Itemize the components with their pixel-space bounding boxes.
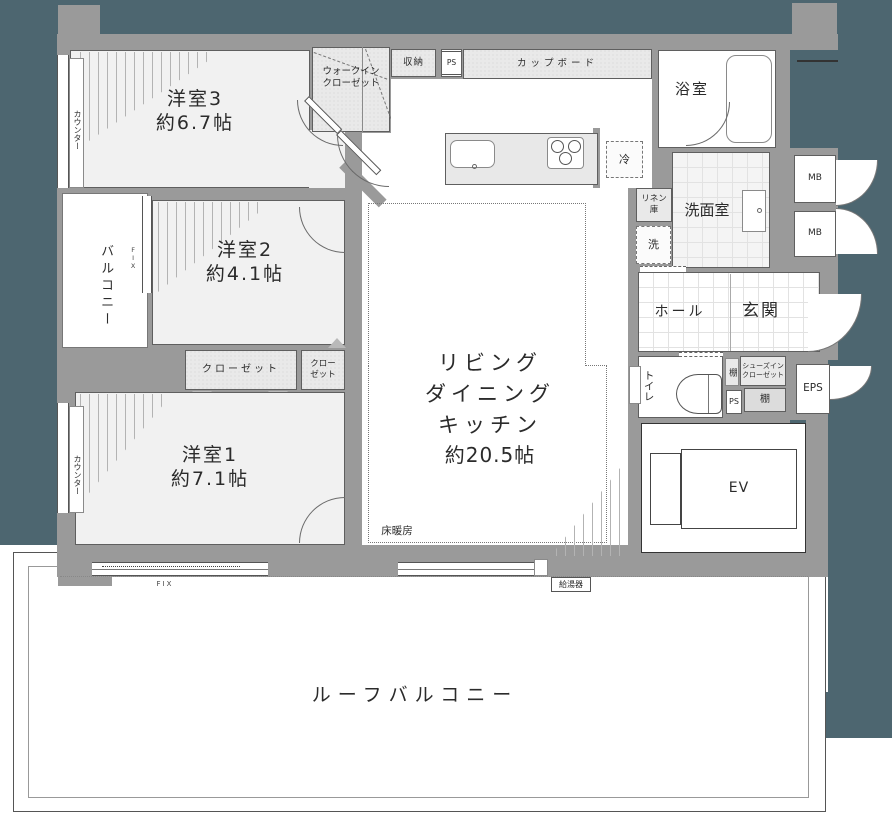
ldk-window-frame-box — [534, 559, 548, 576]
wic-label-2: クローゼット — [322, 78, 379, 90]
stove-burner-1 — [551, 140, 564, 153]
floor-heating-zone-upper — [368, 203, 586, 366]
room2-size: 約4.1帖 — [206, 263, 284, 287]
room3-name: 洋室3 — [167, 88, 223, 112]
door-toilet-sliding — [679, 352, 723, 357]
room3-window — [57, 55, 69, 188]
closet-small-2: ゼット — [310, 370, 336, 381]
elevator-counterweight — [650, 453, 681, 525]
floor-heating-label: 床暖房 — [371, 524, 423, 540]
room1-label: 洋室1 約7.1帖 — [110, 440, 310, 496]
genkan-step-line — [730, 274, 731, 351]
shoes-label-1: シューズイン — [742, 362, 784, 371]
fix-side-label: FIX — [127, 241, 139, 275]
washbasin-dot — [757, 208, 762, 213]
ps-lower-box: PS — [726, 390, 742, 414]
fix-window-side — [142, 196, 152, 293]
toilet-tank-line — [708, 375, 709, 413]
room3-label: 洋室3 約6.7帖 — [100, 84, 290, 140]
cupboard: カップボード — [463, 49, 652, 79]
ldk-floor-upper — [391, 79, 652, 133]
shoes-label-2: クローゼット — [742, 371, 784, 380]
roof-balcony-label: ルーフバルコニー — [260, 682, 570, 710]
room3-size: 約6.7帖 — [156, 112, 234, 136]
eps-box: EPS — [796, 364, 830, 414]
ps-top-box: PS — [441, 49, 462, 77]
toilet-label: トイレ — [641, 358, 655, 414]
washer-space: 洗 — [636, 226, 671, 264]
kitchen-faucet-dot — [472, 164, 477, 169]
toilet-bowl — [676, 374, 722, 414]
fix-bottom-label: FIX — [150, 579, 180, 589]
storage-box: 収納 — [391, 49, 436, 77]
balcony-label: バルコニー — [96, 232, 114, 340]
wall-pillar-top-left — [58, 5, 100, 47]
outside-area-right — [828, 545, 892, 692]
water-heater: 給湯器 — [551, 577, 591, 592]
closet-door-mark-3 — [328, 338, 346, 348]
ldk-label-3: キッチン — [438, 412, 542, 438]
room1-name: 洋室1 — [182, 444, 238, 468]
outside-area-right-lower — [816, 692, 892, 738]
vent-line — [797, 60, 838, 62]
stove-burner-2 — [568, 140, 581, 153]
floor-plan: ルーフバルコニー 洋室3 約6.7帖 カウンター ウォークイン クローゼット 収… — [0, 0, 892, 832]
closet-main: クローゼット — [185, 350, 297, 390]
mb-box-1: MB — [794, 155, 836, 203]
bathroom-label: 浴室 — [662, 78, 722, 100]
ldk-bottom-window — [398, 562, 548, 576]
roof-balcony-top-edge — [60, 576, 808, 577]
wall-pillar-bottom-left — [58, 577, 112, 586]
room2-name: 洋室2 — [217, 239, 273, 263]
mb-box-2: MB — [794, 211, 836, 257]
linen-label-1: リネン — [641, 194, 667, 205]
room1-window — [57, 403, 69, 513]
room2-label: 洋室2 約4.1帖 — [150, 236, 340, 290]
wic-label-1: ウォークイン — [322, 66, 379, 78]
wall-ev-bottom-corner — [790, 550, 828, 577]
linen-label-2: 庫 — [650, 205, 659, 216]
ldk-label-1: リビング — [438, 350, 542, 376]
wall-pillar-top-right — [792, 3, 837, 43]
bathtub — [726, 55, 772, 143]
washbasin — [742, 190, 766, 232]
linen-closet: リネン 庫 — [636, 188, 672, 222]
shelf-lower: 棚 — [744, 388, 786, 412]
room1-counter-label: カウンター — [70, 425, 84, 525]
shelf-side: 棚 — [725, 358, 739, 386]
hall-label: ホール — [648, 302, 712, 324]
washroom-label: 洗面室 — [672, 200, 742, 220]
shoes-in-closet: シューズイン クローゼット — [740, 356, 786, 386]
room1-size: 約7.1帖 — [171, 468, 249, 492]
ldk-size: 約20.5帖 — [445, 443, 536, 468]
room3-counter-label: カウンター — [70, 80, 84, 180]
room1-window-fix-dots — [102, 566, 240, 567]
ldk-label-2: ダイニング — [425, 381, 555, 407]
genkan-label: 玄関 — [733, 299, 789, 325]
refrigerator-space: 冷 — [606, 141, 643, 178]
closet-small: クロー ゼット — [301, 350, 345, 390]
closet-small-1: クロー — [310, 359, 336, 370]
elevator-car: EV — [681, 449, 797, 529]
ldk-label: リビング ダイニング キッチン 約20.5帖 — [375, 348, 605, 470]
toilet-paper-holder — [629, 366, 641, 404]
room1-bottom-window — [92, 562, 268, 576]
stove-burner-3 — [559, 152, 572, 165]
wic-label: ウォークイン クローゼット — [308, 62, 394, 94]
